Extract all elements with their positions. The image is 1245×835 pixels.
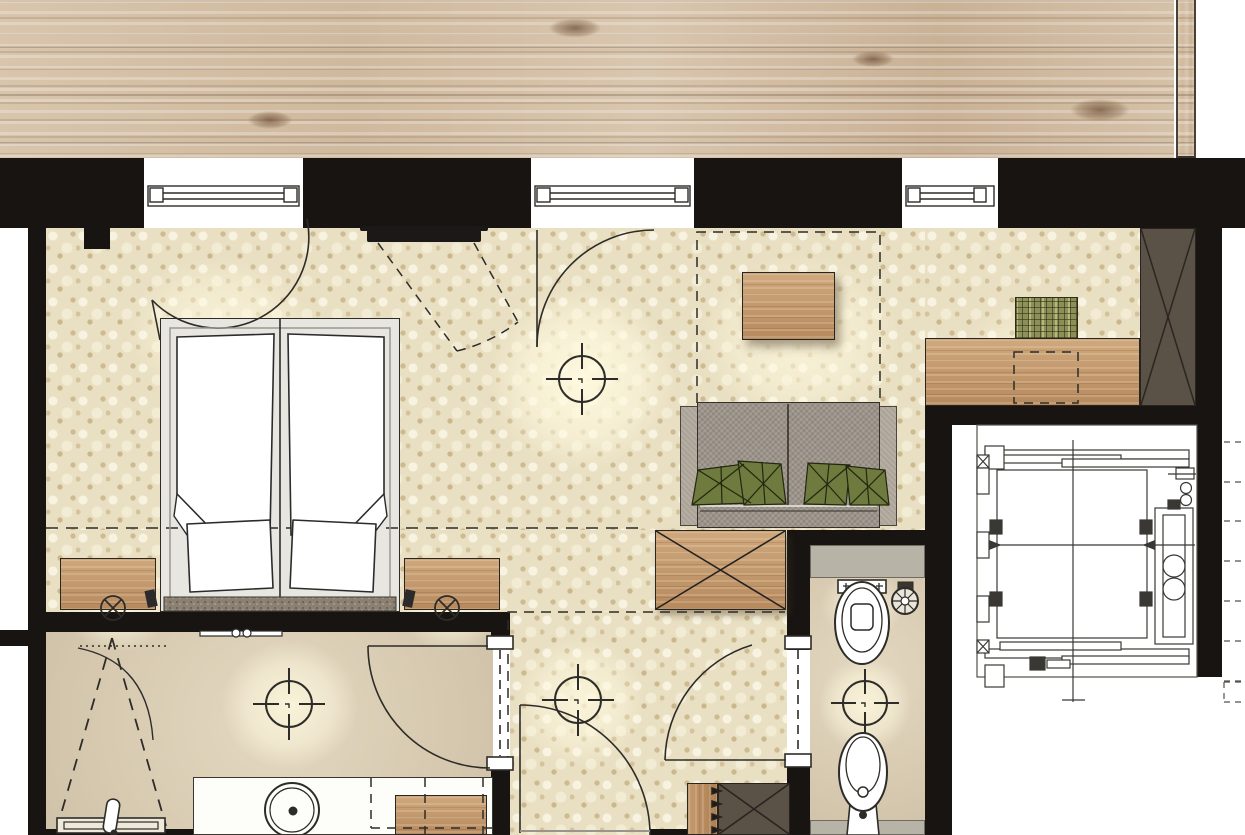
nightstand-left xyxy=(60,558,156,610)
wardrobe-tall xyxy=(1140,228,1196,406)
wood-knot xyxy=(240,108,300,132)
wc-counter-top xyxy=(810,545,925,578)
bed-frame xyxy=(160,318,400,612)
side-table-x-top xyxy=(655,530,786,610)
wood-knot xyxy=(845,48,901,70)
wall-bath-hall-upper xyxy=(491,632,510,648)
wall-bed-bathroom xyxy=(28,612,510,632)
light-glow xyxy=(800,640,930,770)
sofa-two-seat xyxy=(697,402,880,528)
desk xyxy=(925,338,1140,406)
window-opening-1 xyxy=(144,158,303,228)
light-glow xyxy=(490,612,670,792)
floor-plan-canvas xyxy=(0,0,1245,835)
nightstand-right xyxy=(404,558,500,610)
light-glow xyxy=(195,615,385,795)
wall-under-desk xyxy=(925,405,1202,425)
margin-dashed-ticks xyxy=(1224,442,1245,702)
vanity-stool xyxy=(395,795,487,835)
entry-drawer-strip xyxy=(687,783,718,835)
wall-shaft-right xyxy=(1197,425,1222,677)
wood-knot xyxy=(1060,95,1140,125)
sofa-arm-right xyxy=(878,406,897,526)
elevator-shaft-floor xyxy=(977,425,1197,677)
exterior-white-top-right xyxy=(1196,0,1245,158)
window-opening-3 xyxy=(902,158,998,228)
wall-left xyxy=(28,228,46,835)
wall-wc-left-upper xyxy=(787,530,810,650)
wall-left-stub xyxy=(0,630,28,646)
wc-counter-bottom xyxy=(810,820,925,835)
wall-pier-left xyxy=(84,228,110,249)
wood-knot xyxy=(540,15,610,41)
wall-tv xyxy=(367,230,481,242)
entry-closet xyxy=(718,783,790,835)
wood-deck-edge-strip xyxy=(1176,0,1196,158)
wall-bath-hall-lower xyxy=(491,758,510,835)
wall-wc-shaft xyxy=(925,402,952,835)
wall-right-upper xyxy=(1196,228,1222,425)
coffee-table xyxy=(742,272,835,340)
window-opening-2 xyxy=(531,158,694,228)
wall-wc-left-lower xyxy=(787,758,810,835)
